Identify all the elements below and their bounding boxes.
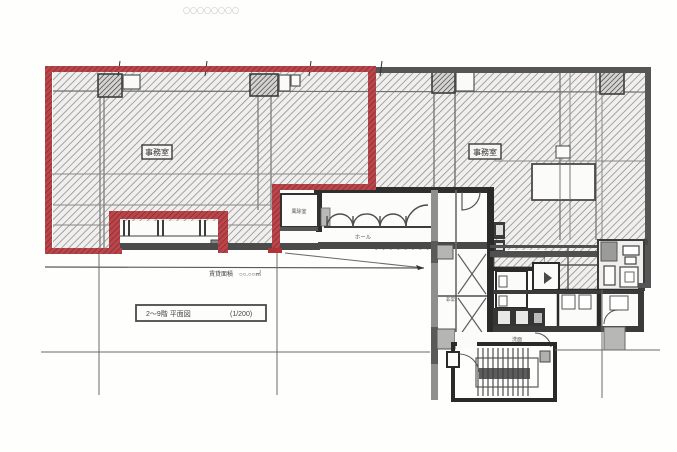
svg-text:事務室: 事務室 [473,147,497,157]
svg-text:洗面: 洗面 [512,336,522,343]
svg-text:ホール: ホール [355,234,372,241]
svg-text:2～9階 平面図: 2～9階 平面図 [146,309,191,318]
svg-text:事務室: 事務室 [145,147,169,157]
svg-text:〇〇〇〇〇〇〇〇: 〇〇〇〇〇〇〇〇 [183,7,239,15]
svg-text:(1/200): (1/200) [230,311,252,318]
svg-text:風除室: 風除室 [291,208,306,215]
svg-text:賃貸面積 ○○.○○㎡: 賃貸面積 ○○.○○㎡ [209,270,261,278]
